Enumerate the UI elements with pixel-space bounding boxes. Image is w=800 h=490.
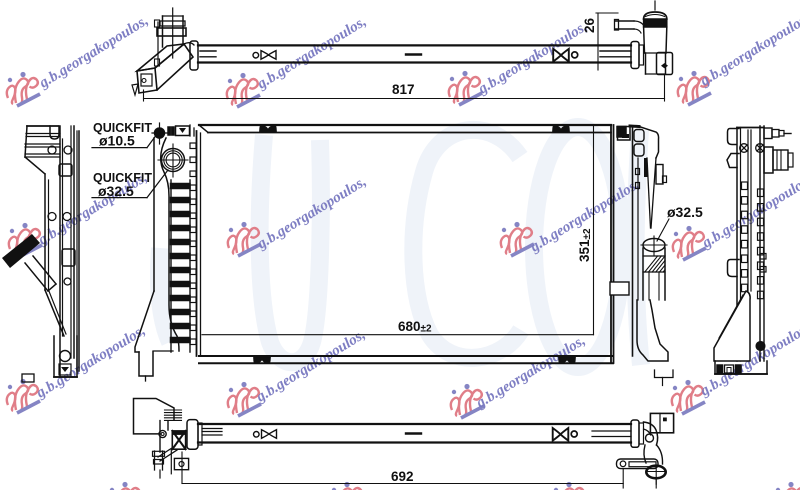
svg-text:ø32.5: ø32.5 [98,183,134,199]
svg-text:817: 817 [392,82,415,97]
svg-text:ø32.5: ø32.5 [667,204,703,220]
svg-text:692: 692 [391,469,414,484]
svg-text:26: 26 [582,17,597,33]
svg-text:ø10.5: ø10.5 [99,133,135,149]
